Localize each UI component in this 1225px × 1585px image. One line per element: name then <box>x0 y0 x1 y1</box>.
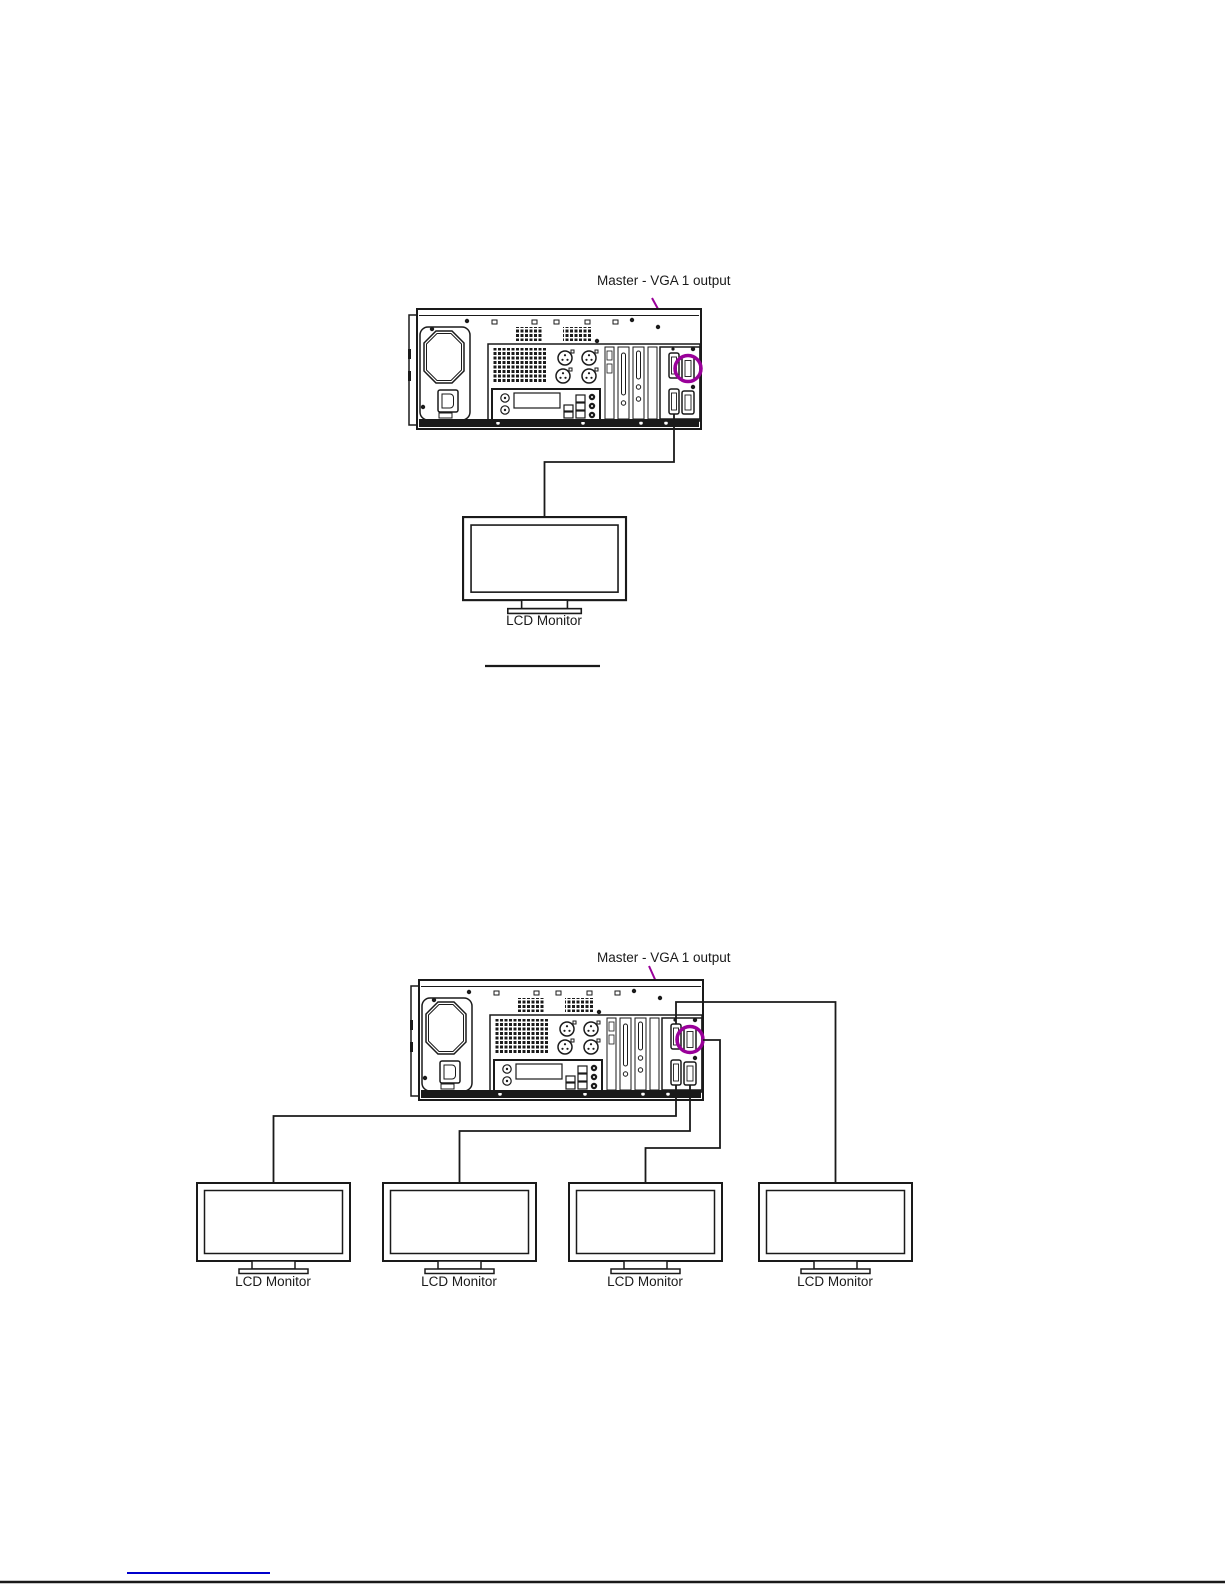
vga1-output-label-single: Master - VGA 1 output <box>597 273 731 289</box>
monitor-label-1: LCD Monitor <box>203 1274 343 1290</box>
monitor-label-4: LCD Monitor <box>765 1274 905 1290</box>
monitor-label-3: LCD Monitor <box>575 1274 715 1290</box>
monitor-label-single: LCD Monitor <box>474 613 614 629</box>
lcd-monitor-illustration <box>759 1183 912 1274</box>
lcd-monitor-illustration <box>569 1183 722 1274</box>
diagram-four-monitors <box>197 966 912 1274</box>
monitor-label-2: LCD Monitor <box>389 1274 529 1290</box>
lcd-monitor-illustration <box>383 1183 536 1274</box>
diagram-single-monitor <box>408 298 701 666</box>
pc-rear-panel <box>410 980 703 1100</box>
page-line-art <box>0 0 1225 1585</box>
lcd-monitor-illustration <box>197 1183 350 1274</box>
lcd-monitor-illustration <box>463 517 626 613</box>
vga1-output-label-quad: Master - VGA 1 output <box>597 950 731 966</box>
pc-rear-panel <box>408 309 701 429</box>
manual-page: Master - VGA 1 output LCD Monitor Master… <box>0 0 1225 1585</box>
